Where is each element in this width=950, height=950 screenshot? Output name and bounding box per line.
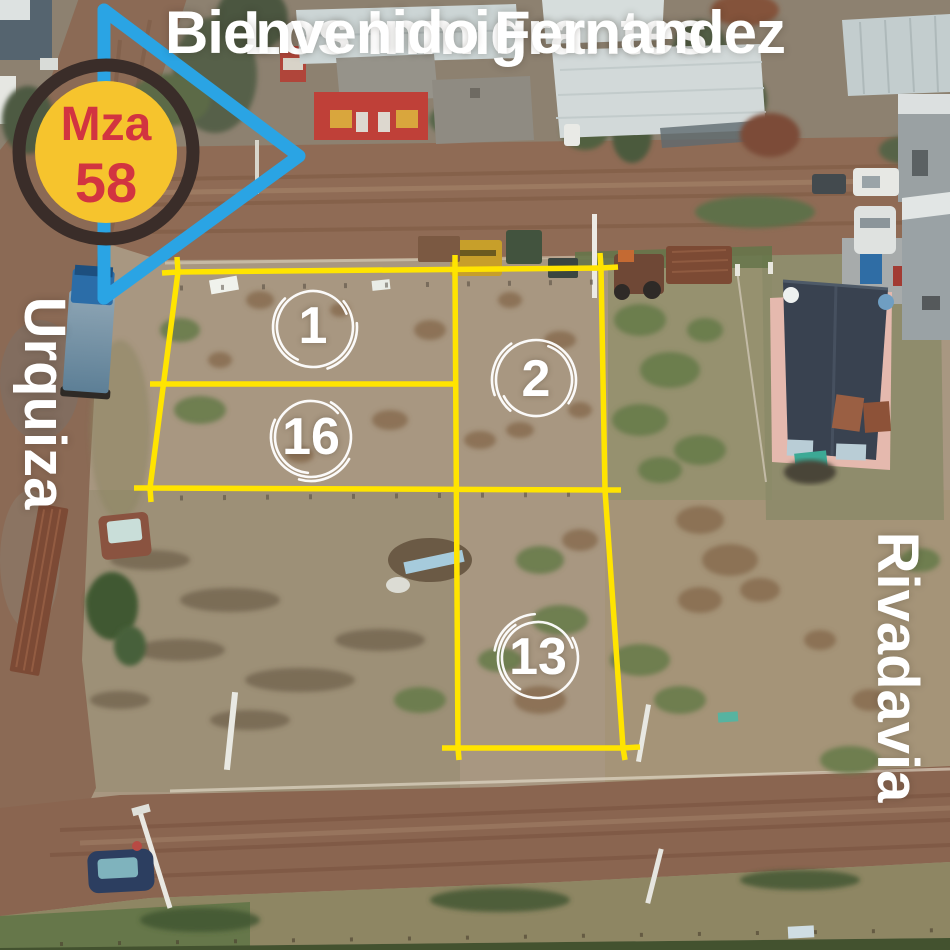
street-label-urquiza: Urquiza: [12, 273, 76, 533]
lot-number-2: 2: [522, 349, 551, 409]
green-trailer: [506, 230, 542, 264]
lot-number-1: 1: [299, 296, 328, 356]
block-badge: Mza 58: [19, 65, 193, 239]
lot-map-aerial-screenshot: Mza 58 Los Inmigrante: [0, 0, 950, 950]
street-label-rivadavia: Rivadavia: [865, 517, 929, 817]
blue-car: [87, 848, 155, 893]
badge-line2: 58: [75, 151, 137, 214]
lot-number-16: 16: [282, 407, 340, 467]
rusty-car: [98, 511, 152, 560]
aerial-photo-canvas: Mza 58: [0, 0, 950, 950]
lot-number-13: 13: [509, 627, 567, 687]
blue-door: [860, 252, 882, 284]
street-label-bienvenido-fernandez: Bienvenido Fernandez: [0, 0, 950, 66]
divider-vertical: [455, 270, 458, 748]
dark-pickup: [812, 174, 846, 194]
satellite-dish: [783, 287, 799, 303]
badge-line1: Mza: [61, 98, 152, 151]
white-suv: [854, 206, 896, 254]
